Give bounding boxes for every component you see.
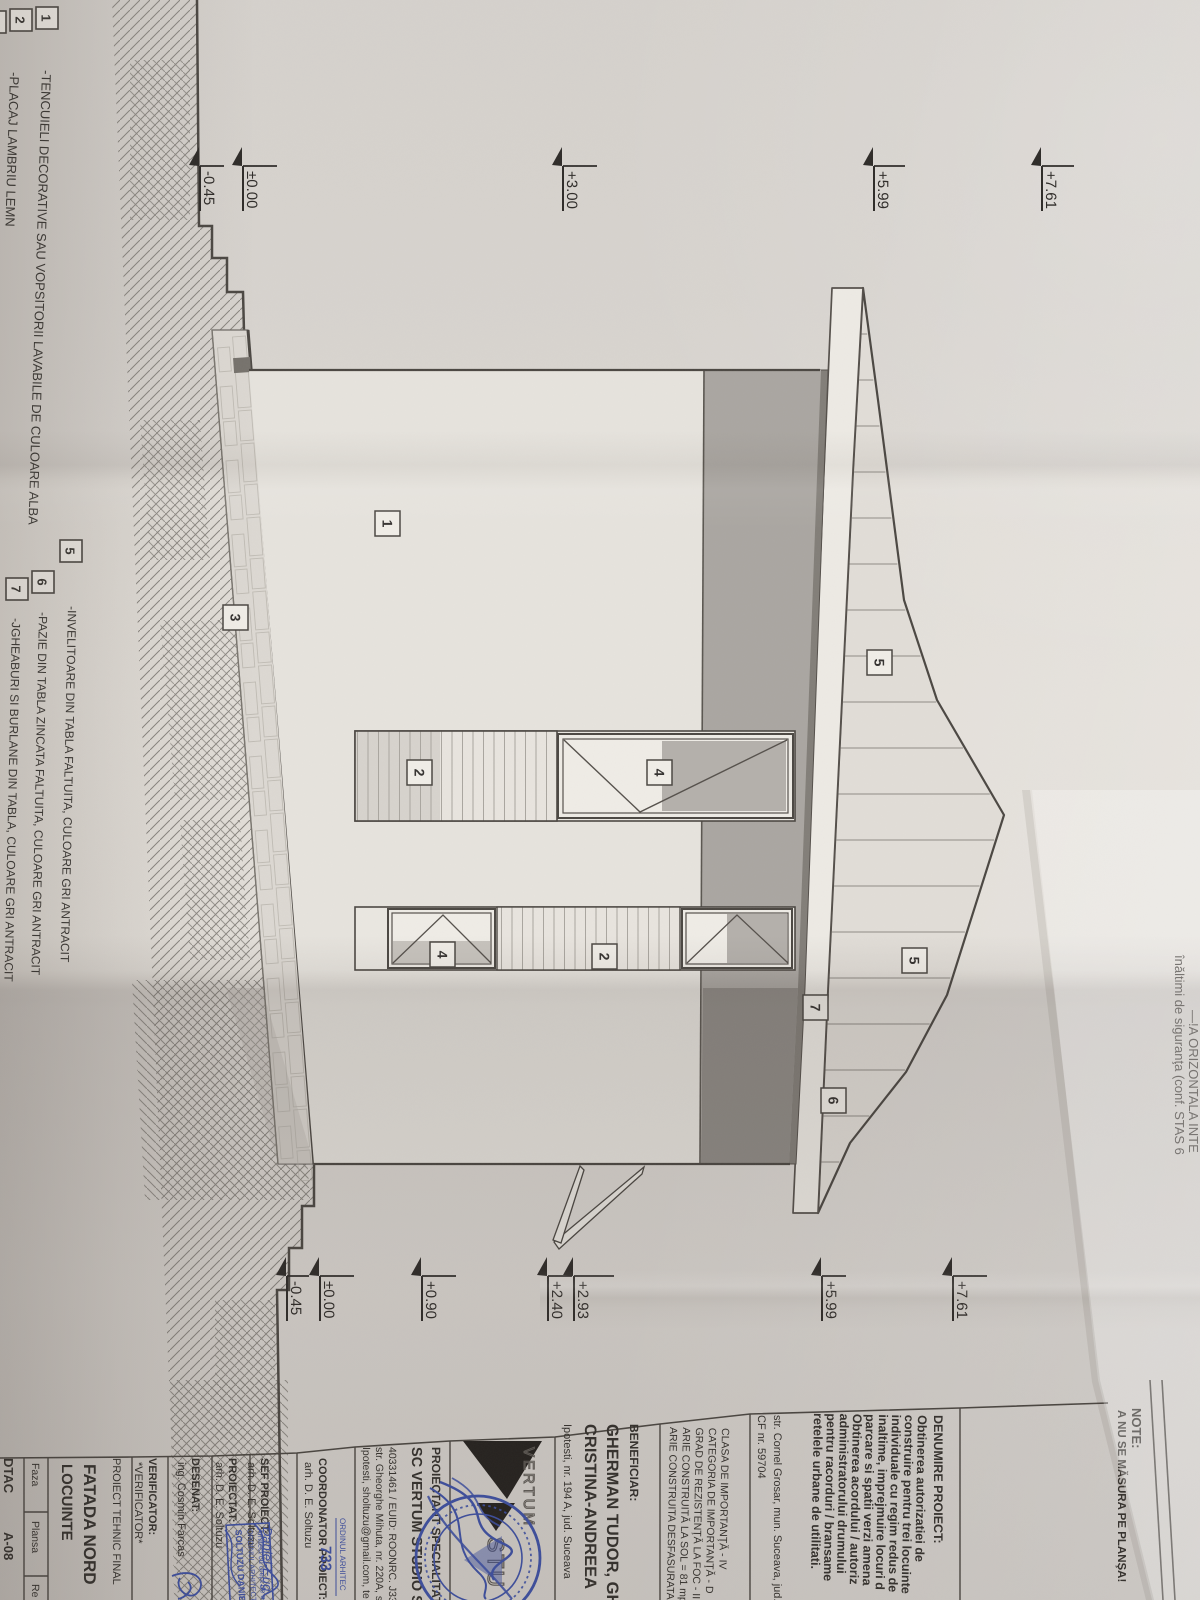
svg-text:A NU SE MĂSURA PE PLANŞA!: A NU SE MĂSURA PE PLANŞA! bbox=[1115, 1410, 1129, 1582]
svg-text:-JGHEABURI SI BURLANE DIN TABL: -JGHEABURI SI BURLANE DIN TABLA, CULOARE… bbox=[1, 618, 23, 983]
svg-text:±0.00: ±0.00 bbox=[320, 1281, 337, 1318]
svg-text:DENUMIRE PROIECT:: DENUMIRE PROIECT: bbox=[931, 1415, 945, 1543]
svg-text:PROIECTANT SPECIALITATE: T: PROIECTANT SPECIALITATE: T bbox=[429, 1447, 443, 1600]
svg-text:Plansa: Plansa bbox=[29, 1521, 41, 1553]
svg-text:7: 7 bbox=[9, 585, 24, 592]
svg-text:CLASA DE IMPORTANŢĂ - IV: CLASA DE IMPORTANŢĂ - IV bbox=[716, 1428, 732, 1570]
svg-text:NOTE:: NOTE: bbox=[1129, 1408, 1144, 1448]
svg-text:+7.61: +7.61 bbox=[953, 1281, 970, 1319]
svg-text:2: 2 bbox=[13, 16, 28, 23]
svg-text:Ipotesti, nr. 194 A, jud. Suce: Ipotesti, nr. 194 A, jud. Suceava bbox=[561, 1424, 573, 1580]
svg-text:5: 5 bbox=[907, 957, 923, 965]
svg-text:+5.99: +5.99 bbox=[874, 171, 891, 209]
svg-text:2: 2 bbox=[597, 953, 613, 961]
svg-text:*VERIFICATOR*: *VERIFICATOR* bbox=[132, 1462, 144, 1544]
svg-text:CRISTINA-ANDREEA: CRISTINA-ANDREEA bbox=[581, 1424, 599, 1589]
svg-text:Re: Re bbox=[29, 1584, 41, 1598]
svg-text:+7.61: +7.61 bbox=[1042, 171, 1059, 209]
svg-text:+5.99: +5.99 bbox=[822, 1281, 839, 1319]
svg-text:ing. Cosmin Farcas: ing. Cosmin Farcas bbox=[175, 1462, 187, 1557]
svg-text:-0.45: -0.45 bbox=[200, 171, 217, 205]
svg-text:±0.00: ±0.00 bbox=[243, 171, 260, 208]
svg-text:7: 7 bbox=[808, 1004, 824, 1012]
svg-text:CF nr. 59704: CF nr. 59704 bbox=[755, 1415, 767, 1479]
svg-text:6: 6 bbox=[35, 578, 50, 585]
svg-text:-TENCUIELI DECORATIVE SAU VOPS: -TENCUIELI DECORATIVE SAU VOPSITORII LAV… bbox=[25, 70, 53, 525]
svg-text:BENEFICIAR:: BENEFICIAR: bbox=[627, 1424, 641, 1501]
svg-text:retelele urbane de utilitati.: retelele urbane de utilitati. bbox=[808, 1413, 825, 1569]
svg-text:5: 5 bbox=[63, 547, 78, 554]
svg-text:LOCUINTE: LOCUINTE bbox=[58, 1464, 75, 1541]
svg-text:VERIFICATOR:: VERIFICATOR: bbox=[146, 1458, 158, 1535]
svg-text:ARIE CONSTRUITA DESFASURATA =: ARIE CONSTRUITA DESFASURATA = bbox=[664, 1427, 679, 1600]
svg-text:FATADA NORD: FATADA NORD bbox=[80, 1464, 99, 1585]
svg-text:str. Cornel Grosar, mun. Sucea: str. Cornel Grosar, mun. Suceava, jud. bbox=[771, 1415, 783, 1600]
svg-text:str. Gheorghe Mihuta, nr. 220A: str. Gheorghe Mihuta, nr. 220A, s bbox=[373, 1447, 385, 1600]
svg-text:ORDINUL ARHITEC: ORDINUL ARHITEC bbox=[338, 1518, 347, 1591]
svg-text:înăltimi de siguranţa (conf. S: înăltimi de siguranţa (conf. STAS 6 bbox=[1172, 954, 1187, 1155]
svg-text:Ipotesti, sholtuzu@gmail.com,: Ipotesti, sholtuzu@gmail.com, te bbox=[360, 1447, 372, 1599]
svg-text:+2.93: +2.93 bbox=[574, 1281, 591, 1319]
svg-text:4: 4 bbox=[652, 769, 668, 777]
svg-text:3: 3 bbox=[0, 18, 2, 25]
svg-text:4: 4 bbox=[435, 951, 451, 959]
svg-text:3: 3 bbox=[228, 614, 244, 622]
svg-text:arh. D. E. Soltuzu: arh. D. E. Soltuzu bbox=[302, 1462, 314, 1548]
svg-text:-INVELITOARE DIN TABLA FALTUIT: -INVELITOARE DIN TABLA FALTUITA, CULOARE… bbox=[58, 606, 79, 963]
svg-text:-PLACAJ LAMBRIU LEMN: -PLACAJ LAMBRIU LEMN bbox=[2, 72, 22, 227]
svg-text:+2.40: +2.40 bbox=[548, 1281, 565, 1319]
svg-text:733: 733 bbox=[317, 1546, 334, 1571]
svg-text:A-08: A-08 bbox=[1, 1532, 16, 1560]
svg-text:+3.00: +3.00 bbox=[563, 171, 580, 209]
svg-text:COORDONATOR PROIECT: MĂN: COORDONATOR PROIECT: MĂN bbox=[316, 1458, 329, 1600]
svg-text:DTAC: DTAC bbox=[1, 1458, 16, 1494]
svg-text:—!A ORIZONTALA INTE: —!A ORIZONTALA INTE bbox=[1186, 1010, 1200, 1153]
svg-text:6: 6 bbox=[826, 1097, 842, 1105]
svg-text:5: 5 bbox=[872, 659, 888, 667]
svg-text:-PAZIE DIN TABLA ZINCATA FALTU: -PAZIE DIN TABLA ZINCATA FALTUITA, CULOA… bbox=[28, 612, 50, 976]
svg-text:Faza: Faza bbox=[29, 1463, 41, 1487]
svg-text:2: 2 bbox=[412, 769, 428, 777]
svg-text:PROIECT TEHNIC FINAL: PROIECT TEHNIC FINAL bbox=[110, 1458, 122, 1585]
svg-text:1: 1 bbox=[380, 520, 396, 528]
svg-text:1: 1 bbox=[39, 14, 54, 21]
svg-text:+0.90: +0.90 bbox=[422, 1281, 439, 1319]
svg-text:40331461 / EUID: ROONRC. J33: 40331461 / EUID: ROONRC. J33 bbox=[386, 1447, 398, 1600]
svg-text:PROIECTAT:: PROIECTAT: bbox=[226, 1458, 238, 1522]
svg-text:-0.45: -0.45 bbox=[287, 1281, 304, 1315]
svg-text:DESENAT:: DESENAT: bbox=[189, 1458, 201, 1512]
svg-text:SC VERTUM STUDIO S: SC VERTUM STUDIO S bbox=[408, 1447, 424, 1600]
svg-text:GHERMAN TUDOR, GH: GHERMAN TUDOR, GH bbox=[603, 1424, 621, 1600]
svg-text:arh. D. E. Soltuzu: arh. D. E. Soltuzu bbox=[213, 1462, 225, 1548]
